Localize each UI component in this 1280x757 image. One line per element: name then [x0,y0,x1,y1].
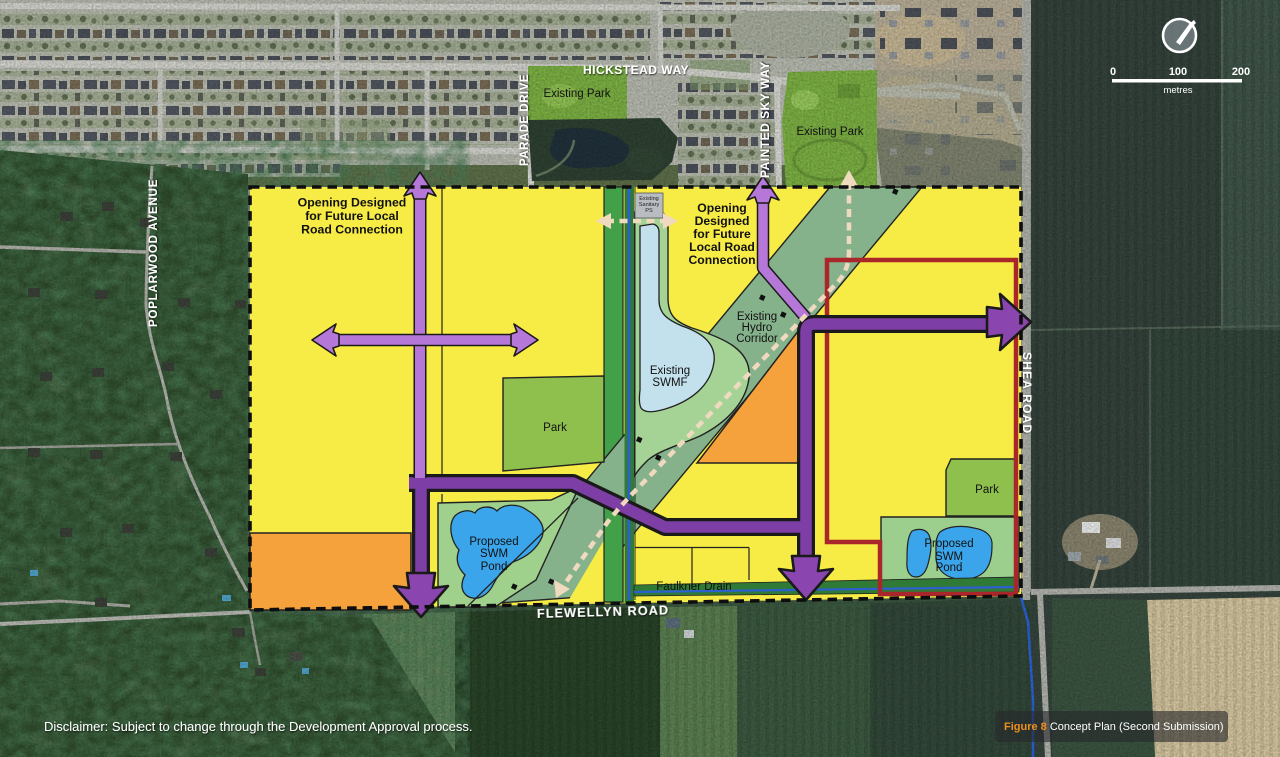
svg-text:Road Connection: Road Connection [301,223,403,237]
svg-text:Opening: Opening [697,201,746,215]
svg-text:PARADE DRIVE: PARADE DRIVE [519,74,531,166]
svg-text:0: 0 [1110,66,1116,78]
svg-text:Existing Park: Existing Park [796,126,863,138]
svg-text:Existing Park: Existing Park [543,88,610,100]
svg-text:200: 200 [1232,66,1250,78]
svg-text:Opening Designed: Opening Designed [298,196,407,210]
svg-text:for Future Local: for Future Local [305,209,399,223]
svg-text:POPLARWOOD AVENUE: POPLARWOOD AVENUE [148,179,160,327]
svg-text:100: 100 [1169,66,1187,78]
svg-text:Figure 8 Concept Plan (Second: Figure 8 Concept Plan (Second Submission… [1004,721,1224,733]
svg-text:PAINTED SKY WAY: PAINTED SKY WAY [758,61,772,178]
svg-text:PS: PS [645,208,653,214]
svg-text:Pond: Pond [936,562,963,574]
svg-text:Park: Park [975,484,999,496]
svg-text:Local Road: Local Road [689,240,755,254]
svg-text:SWM: SWM [480,548,508,560]
svg-text:Designed: Designed [695,214,750,228]
svg-text:Disclaimer: Subject to change: Disclaimer: Subject to change through th… [44,719,473,734]
svg-text:Park: Park [543,422,567,434]
svg-text:Corridor: Corridor [736,333,778,345]
svg-text:Connection: Connection [688,253,755,267]
svg-text:Proposed: Proposed [924,538,973,550]
svg-text:SWMF: SWMF [652,377,687,389]
svg-text:for Future: for Future [693,227,751,241]
svg-text:SHEA ROAD: SHEA ROAD [1020,352,1034,434]
svg-text:Pond: Pond [481,561,508,573]
svg-text:Faulkner Drain: Faulkner Drain [656,581,731,593]
svg-text:Existing: Existing [650,365,690,377]
svg-text:metres: metres [1163,85,1192,96]
svg-text:HICKSTEAD WAY: HICKSTEAD WAY [583,63,689,77]
svg-text:Proposed: Proposed [469,536,518,548]
